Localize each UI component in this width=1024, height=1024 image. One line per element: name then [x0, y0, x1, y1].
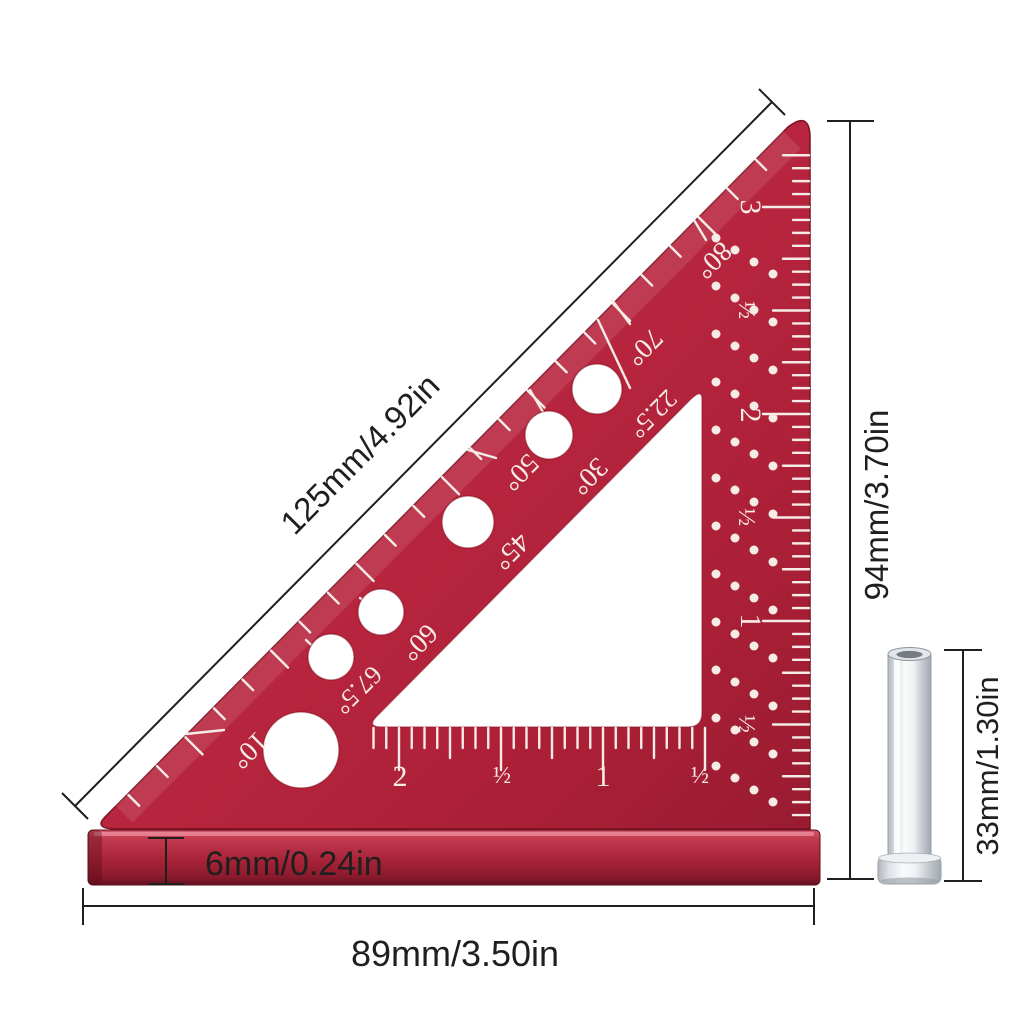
scale-number: 1 — [734, 614, 767, 629]
scale-number: ½ — [733, 301, 759, 319]
dot — [712, 570, 721, 579]
scale-number: 2 — [734, 408, 767, 423]
scale-number: ½ — [493, 763, 511, 789]
dot — [712, 666, 721, 675]
dot — [769, 510, 778, 519]
speed-square-scene: 10° 60° 67.5° 45° 50° 30° 22.5° 70° 80° … — [0, 0, 1024, 1024]
dot — [750, 450, 759, 459]
base-bar — [88, 830, 820, 885]
dot — [750, 738, 759, 747]
dot — [750, 354, 759, 363]
dot — [769, 654, 778, 663]
dot — [769, 366, 778, 375]
speed-square: 10° 60° 67.5° 45° 50° 30° 22.5° 70° 80° … — [88, 121, 820, 885]
dot — [769, 270, 778, 279]
scale-number: 1 — [596, 760, 611, 793]
dot — [769, 702, 778, 711]
dot — [712, 762, 721, 771]
angle-hole — [525, 411, 573, 459]
angle-hole — [358, 589, 404, 635]
dot — [712, 426, 721, 435]
dot — [712, 330, 721, 339]
dot — [731, 438, 740, 447]
scale-number: ½ — [733, 508, 759, 526]
angle-hole — [442, 496, 494, 548]
dot — [750, 498, 759, 507]
pin — [878, 648, 941, 885]
dot — [769, 414, 778, 423]
dot — [731, 390, 740, 399]
scale-number: 3 — [734, 200, 767, 215]
dot — [712, 378, 721, 387]
dot — [731, 534, 740, 543]
dot — [712, 522, 721, 531]
scale-number: ½ — [733, 715, 759, 733]
dot — [769, 318, 778, 327]
base-dimension-label: 89mm/3.50in — [351, 933, 559, 974]
dot — [769, 462, 778, 471]
thickness-dimension-label: 6mm/0.24in — [205, 845, 383, 883]
dot — [712, 618, 721, 627]
scale-number: 2 — [393, 760, 408, 793]
dot — [750, 690, 759, 699]
dot — [750, 258, 759, 267]
dot — [731, 582, 740, 591]
pin-dimension-label: 33mm/1.30in — [970, 676, 1005, 855]
dot — [769, 750, 778, 759]
pin-top-hole — [897, 651, 923, 658]
pin-base-cap-top — [879, 853, 941, 863]
dot — [731, 774, 740, 783]
pin-shaft-highlight — [894, 657, 900, 857]
dot — [731, 342, 740, 351]
dot — [731, 630, 740, 639]
dot — [712, 474, 721, 483]
product-image: 10° 60° 67.5° 45° 50° 30° 22.5° 70° 80° … — [0, 0, 1024, 1024]
dot — [712, 714, 721, 723]
dot — [769, 606, 778, 615]
dot — [769, 558, 778, 567]
angle-hole — [308, 634, 354, 680]
angle-hole — [263, 712, 339, 788]
dot — [731, 486, 740, 495]
height-dimension-label: 94mm/3.70in — [858, 410, 895, 601]
dot — [750, 642, 759, 651]
base-bar-left-face — [88, 830, 102, 885]
dot — [731, 678, 740, 687]
dot — [750, 786, 759, 795]
angle-hole — [572, 364, 622, 414]
dot — [769, 798, 778, 807]
dot — [750, 594, 759, 603]
pin-base-cap-shade — [881, 878, 939, 885]
dot — [750, 546, 759, 555]
scale-number: ½ — [691, 763, 709, 789]
base-bar-highlight — [94, 832, 814, 836]
